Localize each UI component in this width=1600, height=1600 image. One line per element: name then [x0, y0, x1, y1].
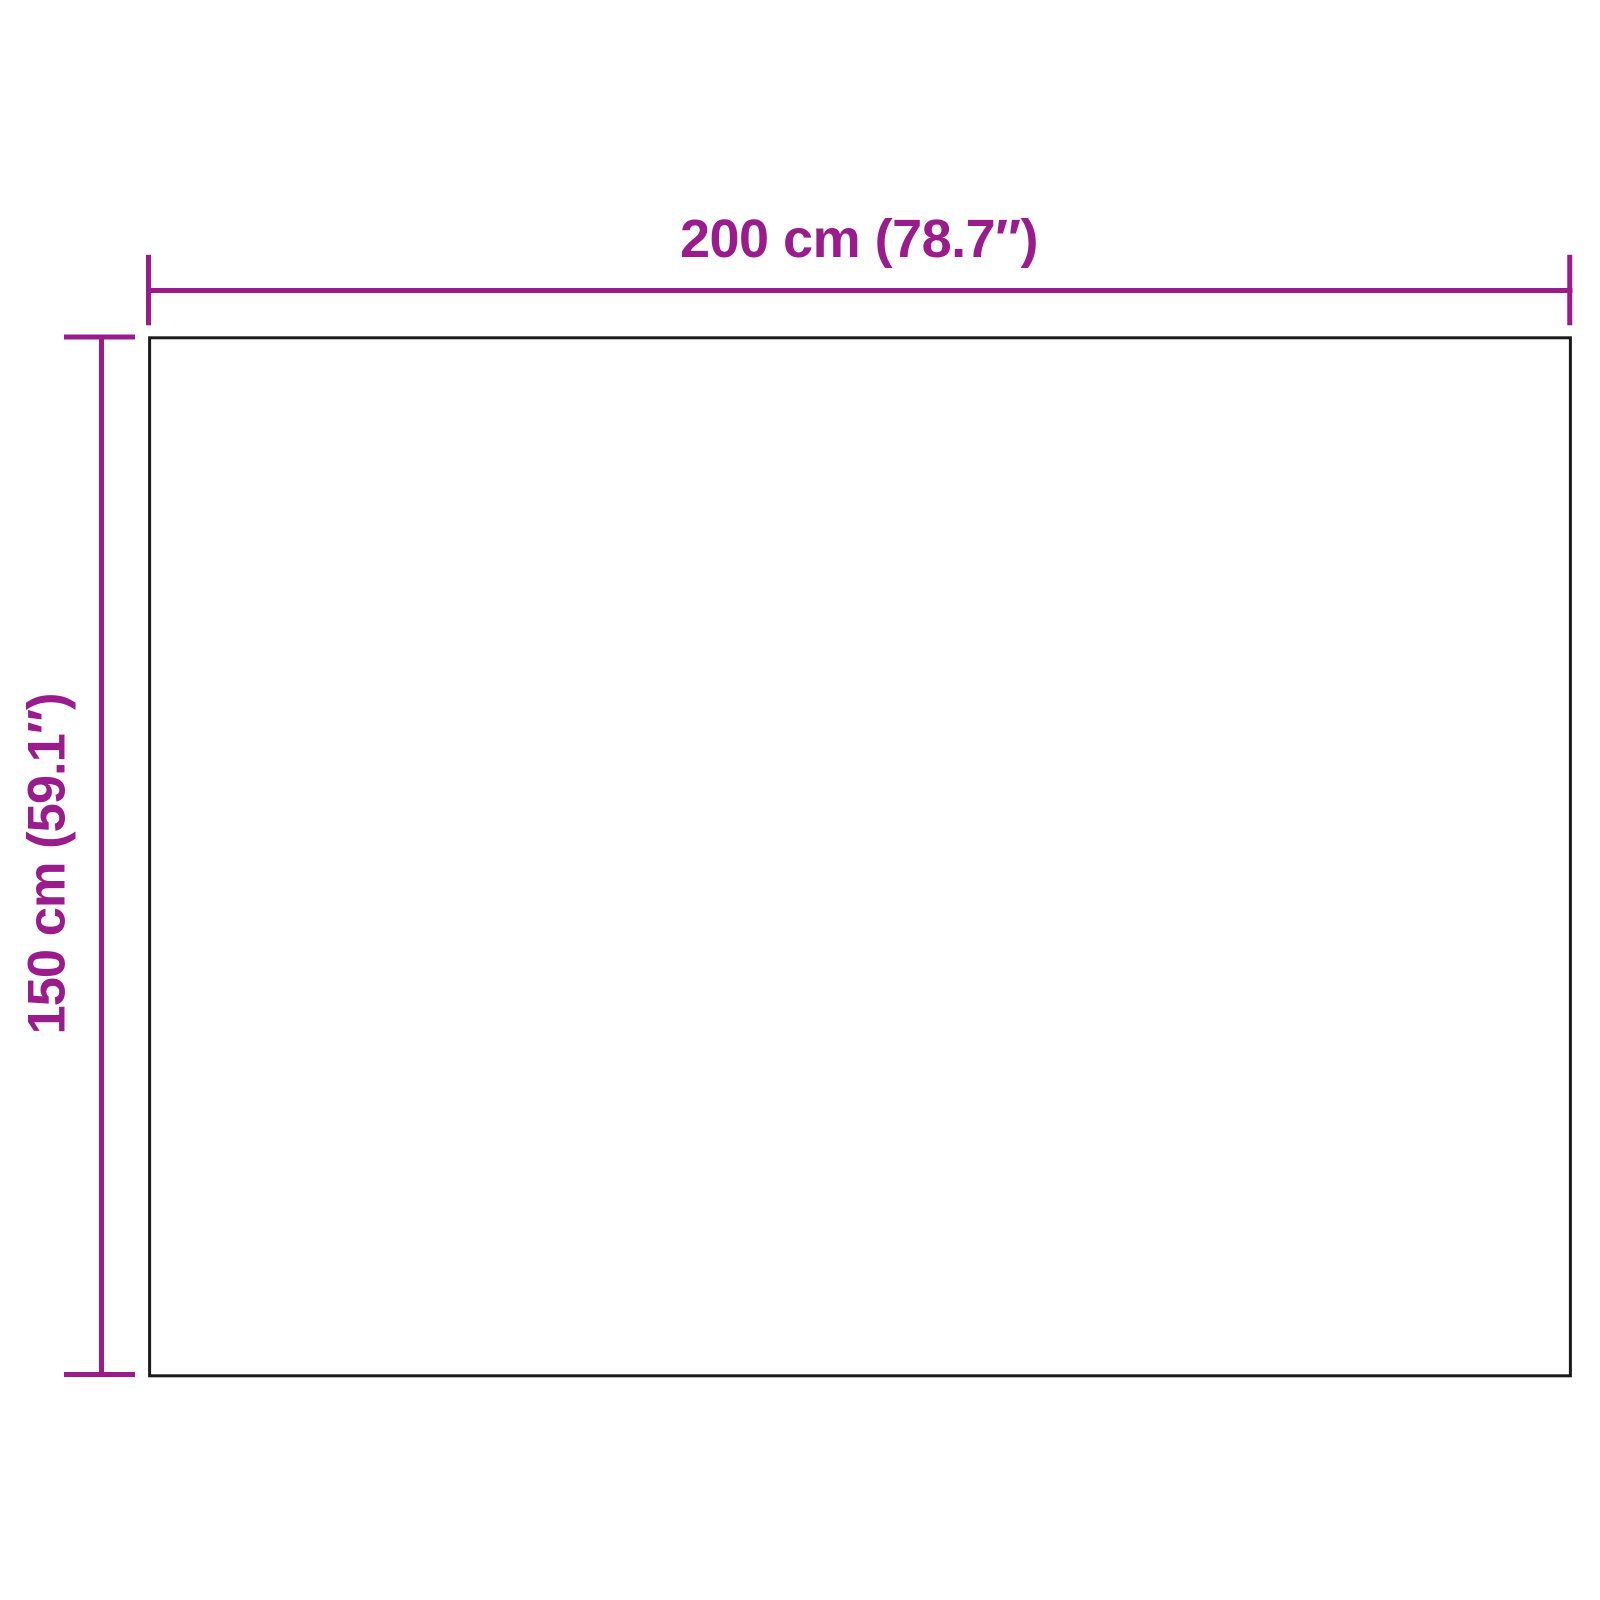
svg-text:150 cm (59.1″): 150 cm (59.1″): [17, 694, 76, 1035]
svg-text:200 cm (78.7″): 200 cm (78.7″): [680, 209, 1038, 269]
